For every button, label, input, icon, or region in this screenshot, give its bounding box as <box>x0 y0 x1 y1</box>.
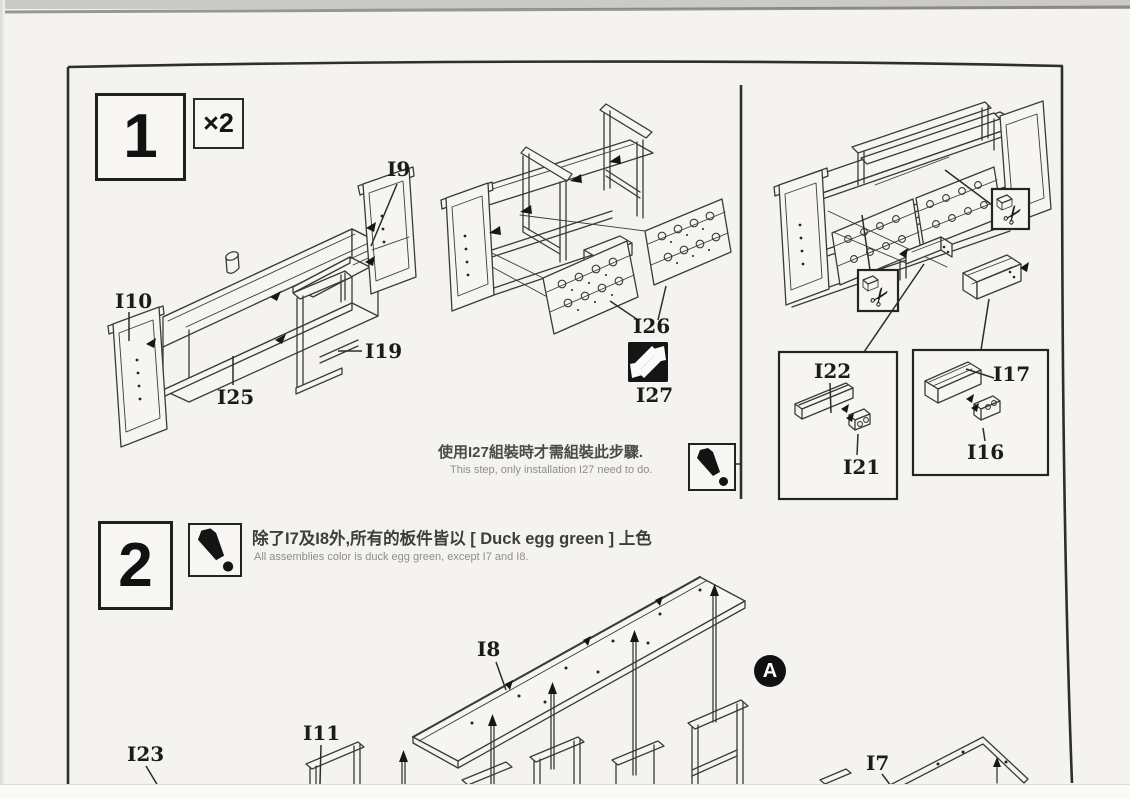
part-label-i10: I10 <box>115 291 152 311</box>
end-panel-i10 <box>108 306 167 447</box>
part-label-i8: I8 <box>477 639 500 659</box>
exclamation-icon <box>188 523 242 577</box>
part-label-i7: I7 <box>866 753 889 773</box>
step2-note-en: All assemblies color is duck egg green, … <box>254 551 529 563</box>
part-label-i27: I27 <box>636 385 673 405</box>
part-label-i25: I25 <box>217 387 254 407</box>
step1-number: 1 <box>123 106 157 168</box>
part-label-i9: I9 <box>387 159 410 179</box>
part-label-i22: I22 <box>814 361 851 381</box>
view-marker-a: A <box>754 655 786 687</box>
right-assembly-left-panel <box>774 168 829 305</box>
part-label-i21: I21 <box>843 457 880 477</box>
panel-i7 <box>888 737 1028 791</box>
middle-left-end-panel <box>441 182 494 311</box>
leg-frames-bottom <box>306 700 851 786</box>
step1-note-zh: 使用I27組裝時才需組裝此步驟. <box>438 441 643 462</box>
step1-multiplier-box: ×2 <box>193 98 244 149</box>
instruction-sheet: ✂ ✂ <box>0 0 1130 799</box>
step2-note-zh: 除了I7及I8外,所有的板件皆以 [ Duck egg green ] 上色 <box>252 525 652 549</box>
step2-assembly <box>146 577 1028 795</box>
step1-number-box: 1 <box>95 93 186 181</box>
step1-middle-assembly <box>441 104 731 382</box>
exclamation-icon <box>688 443 736 491</box>
interchange-arrows-icon <box>628 342 668 382</box>
part-label-i26: I26 <box>633 316 670 336</box>
scissors-icon: ✂ <box>992 189 1031 232</box>
part-label-i19: I19 <box>365 341 402 361</box>
step1-note-en: This step, only installation I27 need to… <box>450 464 652 476</box>
part-label-i23: I23 <box>127 744 164 764</box>
gauge-panel-right <box>645 199 731 285</box>
scissors-icon: ✂ <box>858 270 898 314</box>
step1-multiplier: ×2 <box>203 108 234 139</box>
step1-right-assembly: ✂ ✂ <box>774 101 1051 352</box>
view-marker-a-letter: A <box>763 660 777 683</box>
step2-number-box: 2 <box>98 521 173 610</box>
part-label-i17: I17 <box>993 364 1030 384</box>
step1-left-assembly <box>108 167 416 447</box>
part-label-i16: I16 <box>967 442 1004 462</box>
connector-piece <box>225 250 240 273</box>
shelf-part-i25 <box>163 229 378 402</box>
scan-edge-bottom <box>0 784 1130 799</box>
end-panel-i9 <box>358 167 416 294</box>
step2-number: 2 <box>118 535 152 597</box>
flying-tray-large <box>963 255 1029 299</box>
part-label-i11: I11 <box>303 723 340 743</box>
